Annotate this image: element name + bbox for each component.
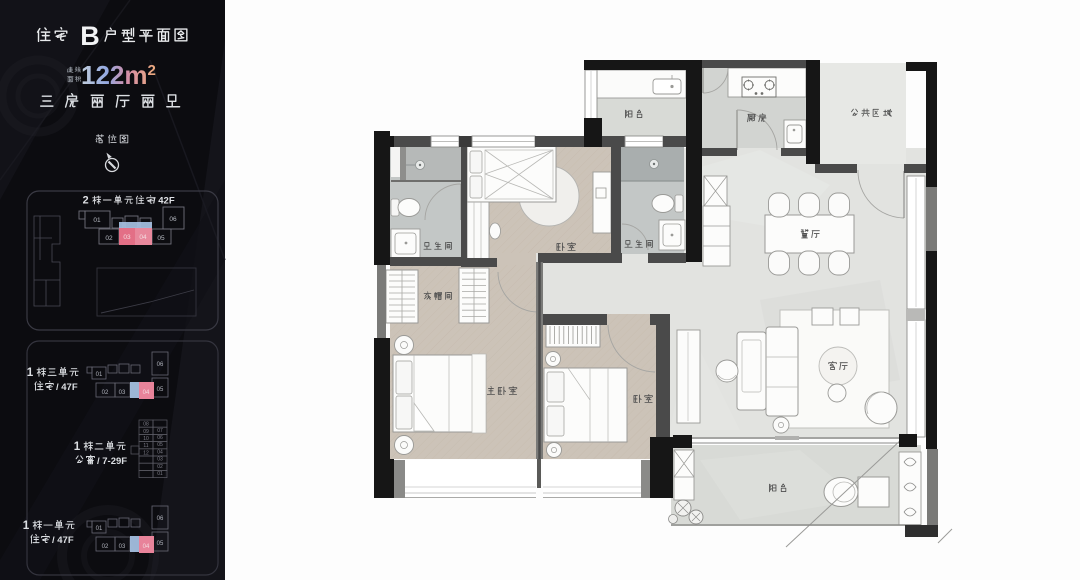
svg-text:03: 03 — [119, 544, 126, 550]
svg-text:04: 04 — [139, 234, 147, 241]
svg-text:1: 1 — [23, 519, 30, 532]
svg-text:01: 01 — [96, 372, 103, 378]
svg-text:09: 09 — [143, 429, 149, 435]
svg-text:1: 1 — [74, 440, 81, 453]
svg-text:05: 05 — [157, 442, 163, 448]
svg-text:05: 05 — [157, 235, 165, 242]
svg-text:02: 02 — [105, 235, 113, 242]
svg-text:02: 02 — [157, 464, 163, 470]
svg-text:/ 7-29F: / 7-29F — [97, 456, 127, 467]
svg-text:10: 10 — [143, 436, 149, 442]
svg-text:04: 04 — [143, 390, 150, 396]
svg-text:2: 2 — [83, 195, 89, 207]
svg-text:01: 01 — [157, 471, 163, 477]
svg-text:04: 04 — [157, 449, 163, 455]
svg-text:12: 12 — [143, 450, 149, 456]
svg-text:/ 47F: / 47F — [56, 382, 78, 393]
svg-text:02: 02 — [102, 544, 109, 550]
svg-text:01: 01 — [96, 526, 103, 532]
svg-text:11: 11 — [143, 443, 148, 449]
svg-text:06: 06 — [157, 362, 164, 368]
svg-text:04: 04 — [143, 544, 150, 550]
svg-text:01: 01 — [93, 217, 101, 224]
svg-text:03: 03 — [119, 390, 126, 396]
svg-text:07: 07 — [157, 428, 163, 434]
svg-text:05: 05 — [157, 387, 164, 393]
svg-text:03: 03 — [123, 234, 131, 241]
svg-text:02: 02 — [102, 390, 109, 396]
svg-text:122m2: 122m2 — [81, 60, 156, 90]
svg-text:1: 1 — [27, 366, 34, 379]
svg-text:08: 08 — [143, 422, 149, 428]
svg-text:03: 03 — [157, 457, 163, 463]
svg-text:06: 06 — [157, 516, 164, 522]
svg-text:05: 05 — [157, 541, 164, 547]
svg-text:06: 06 — [157, 435, 163, 441]
svg-text:06: 06 — [169, 216, 177, 223]
svg-text:/ 42F: / 42F — [153, 196, 175, 207]
svg-text:B: B — [80, 21, 100, 51]
svg-text:/ 47F: / 47F — [52, 535, 74, 546]
